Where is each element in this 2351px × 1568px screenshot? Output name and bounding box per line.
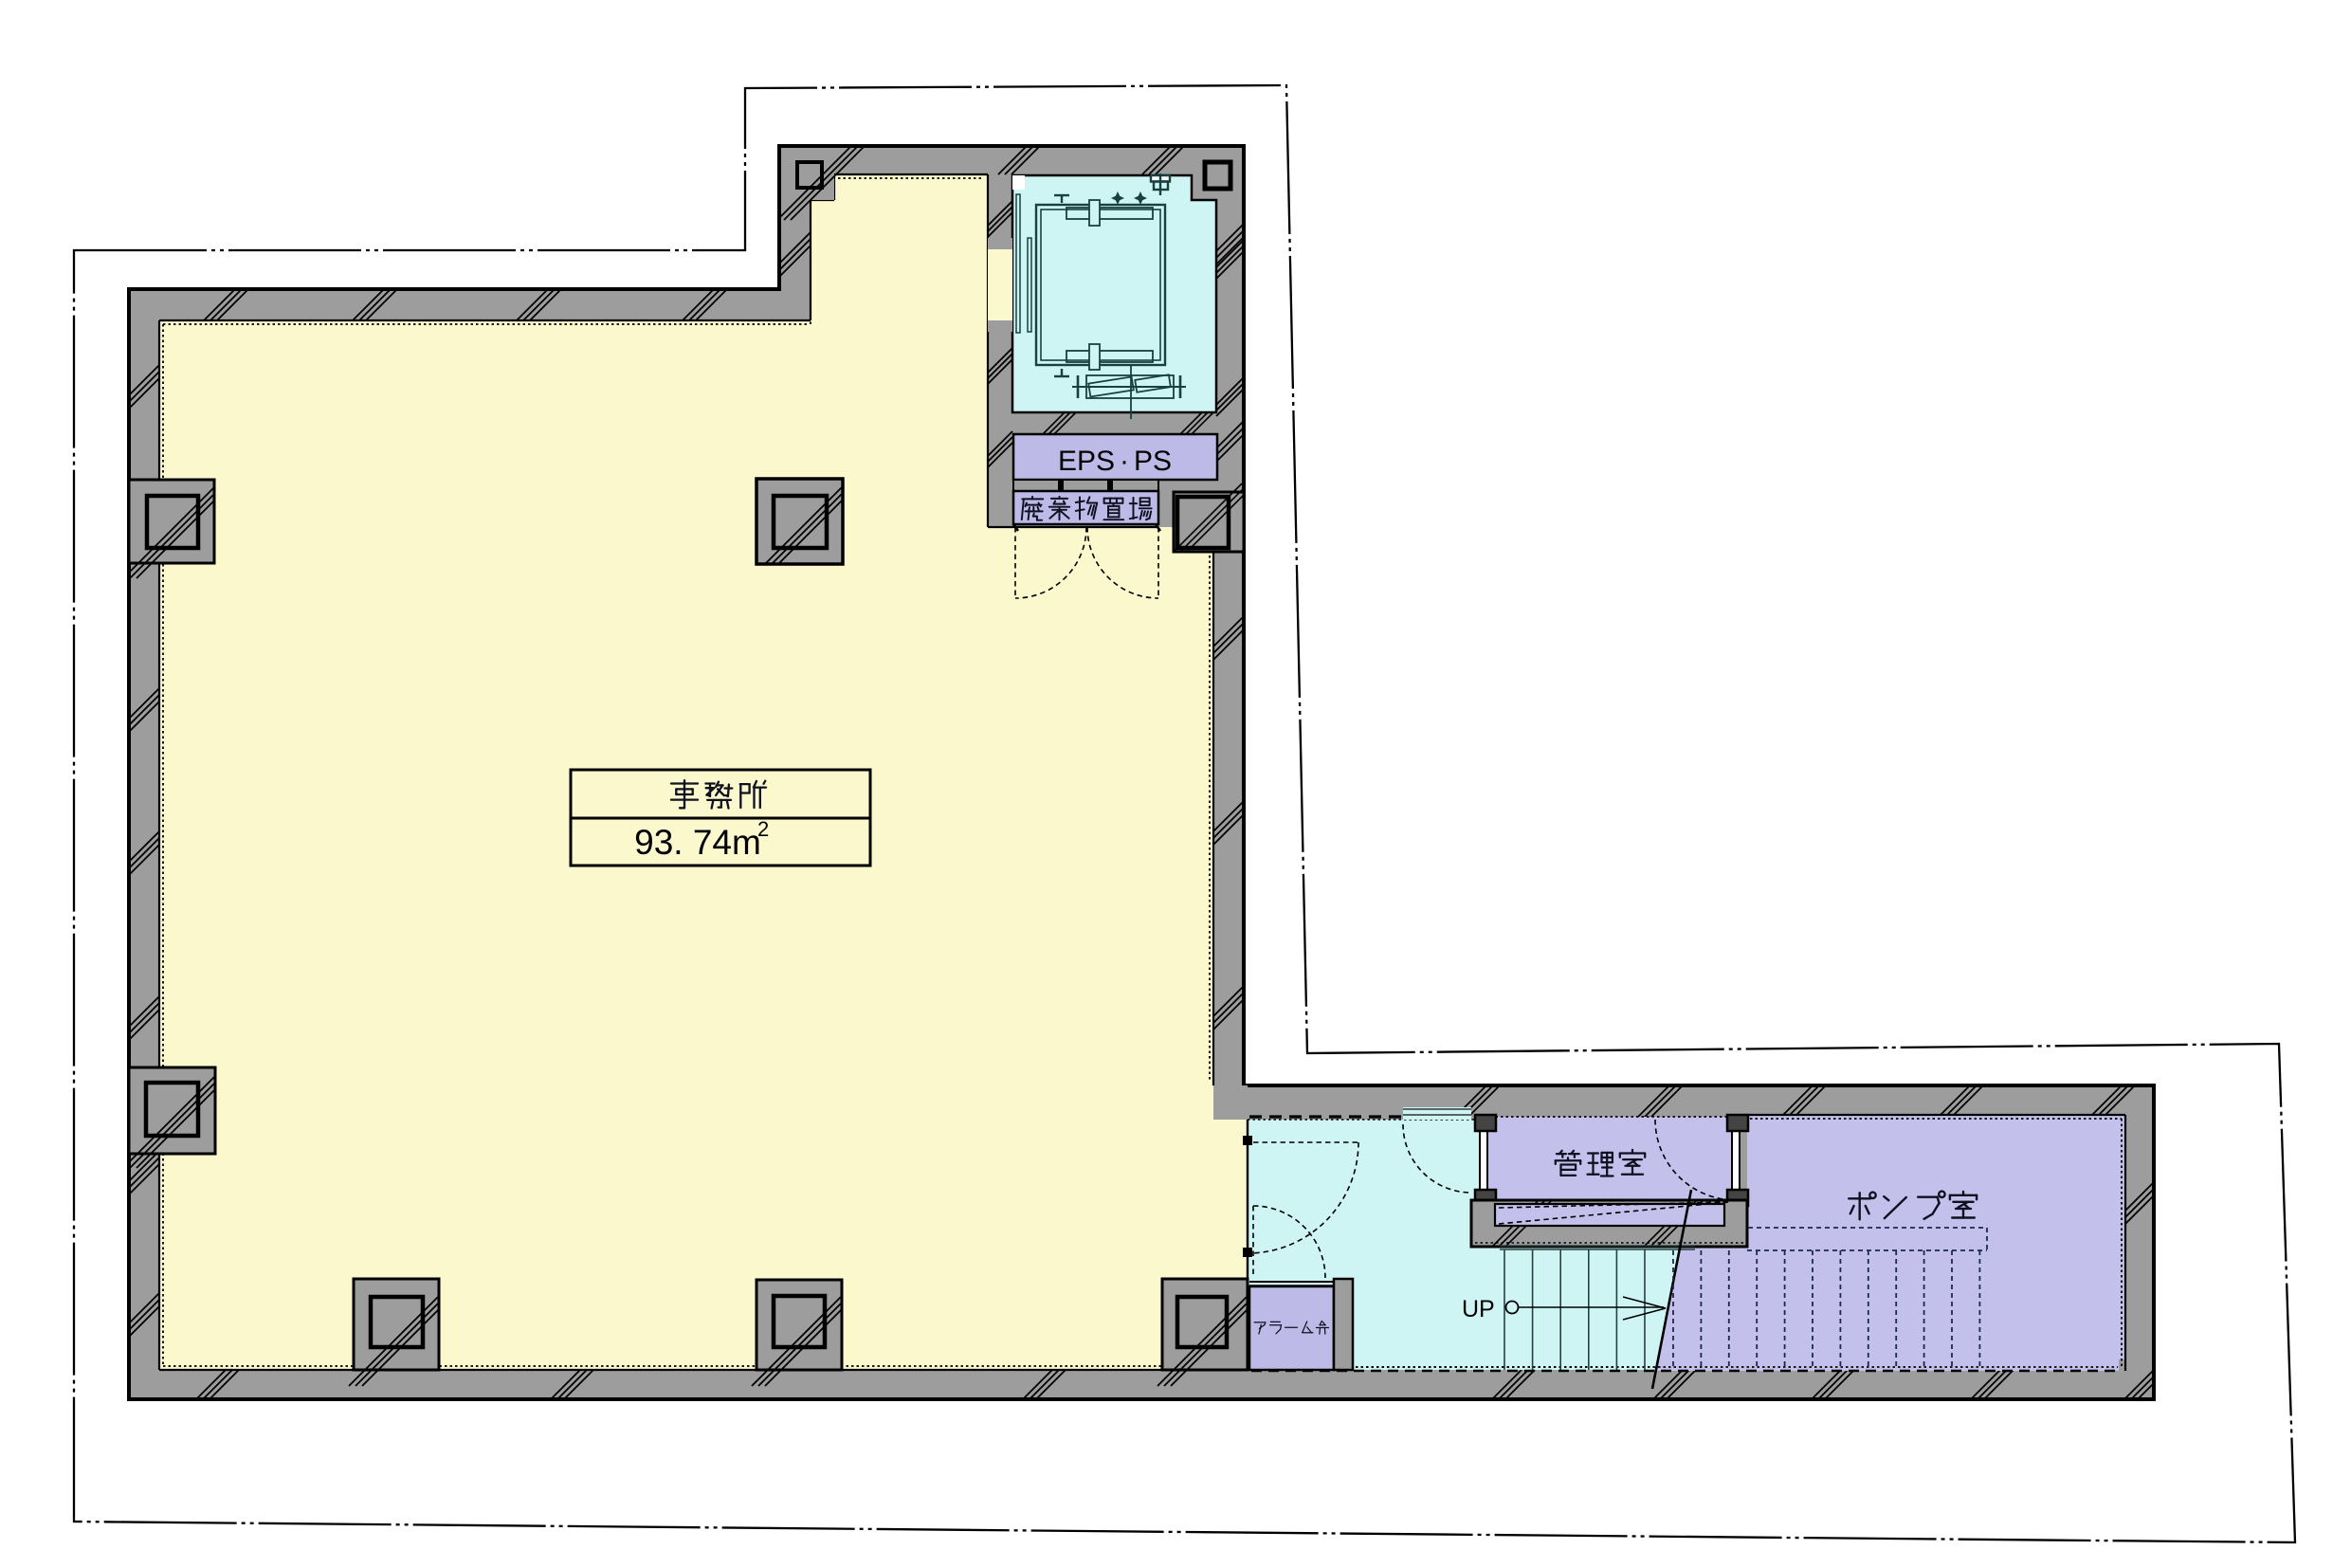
svg-text:93. 74m: 93. 74m — [634, 823, 761, 862]
svg-text:2: 2 — [757, 817, 769, 841]
svg-text:UP: UP — [1462, 1296, 1495, 1322]
